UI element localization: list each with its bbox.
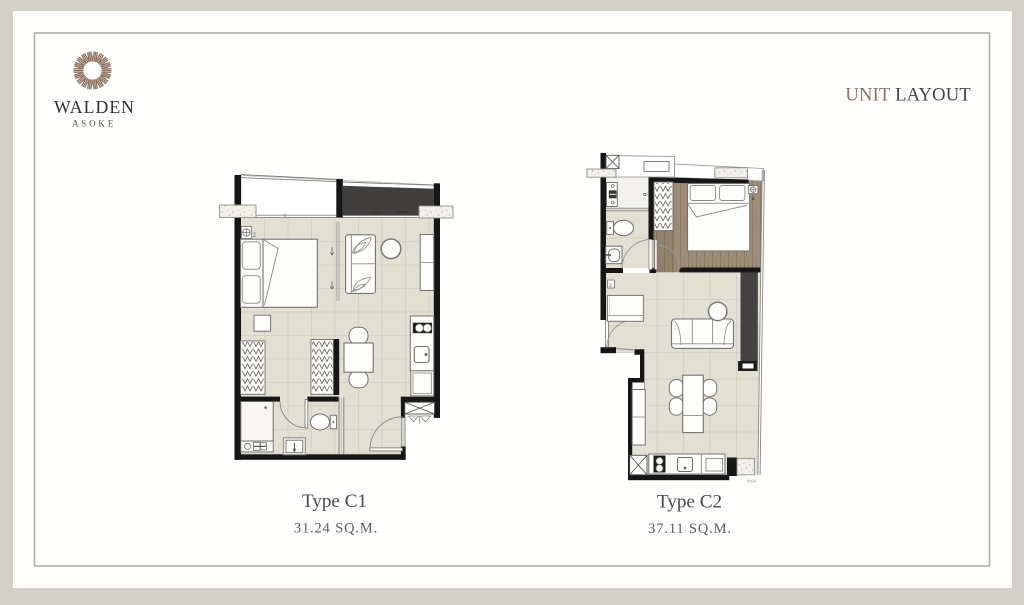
svg-text:37.11 SQ.M.: 37.11 SQ.M. xyxy=(648,521,732,537)
svg-text:WALDEN: WALDEN xyxy=(54,97,135,117)
svg-text:2: 2 xyxy=(609,283,612,289)
svg-text:UNIT LAYOUT: UNIT LAYOUT xyxy=(845,85,971,106)
svg-text:ASOKE: ASOKE xyxy=(72,119,116,129)
svg-text:Type C1: Type C1 xyxy=(302,491,367,512)
svg-text:31.24 SQ.M.: 31.24 SQ.M. xyxy=(294,521,378,537)
svg-text:PS04: PS04 xyxy=(747,479,757,484)
svg-text:Type C2: Type C2 xyxy=(657,492,722,513)
svg-text:4: 4 xyxy=(752,197,755,203)
svg-text:2: 2 xyxy=(253,232,256,239)
